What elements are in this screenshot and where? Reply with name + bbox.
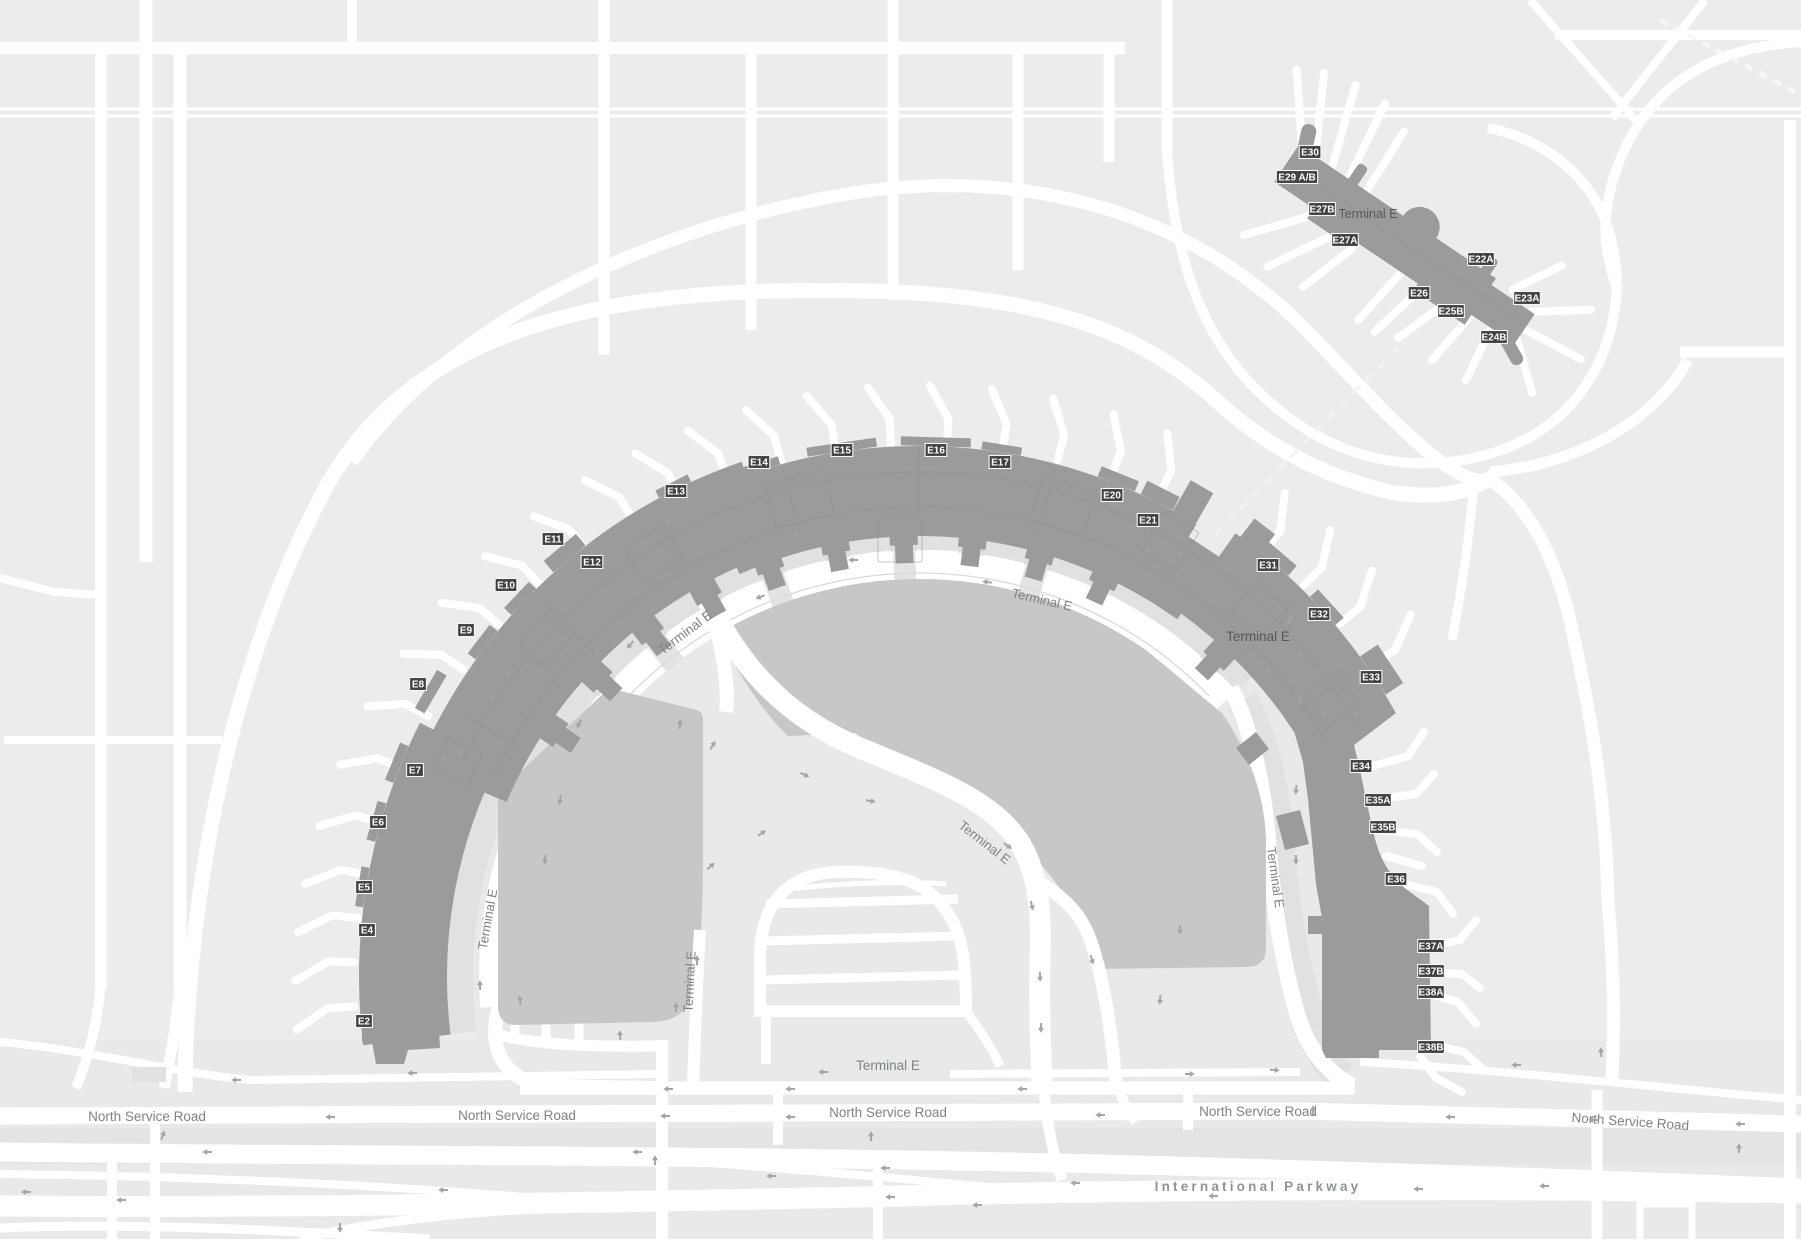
svg-text:E25B: E25B [1438,307,1463,318]
svg-text:E35B: E35B [1370,823,1395,834]
svg-text:E23A: E23A [1514,294,1539,305]
svg-text:E12: E12 [583,558,601,569]
svg-text:E22A: E22A [1468,255,1493,266]
svg-text:E2: E2 [358,1017,371,1028]
svg-text:North Service Road: North Service Road [88,1109,206,1124]
svg-text:E24B: E24B [1481,333,1506,344]
svg-text:E14: E14 [750,458,768,469]
svg-text:E13: E13 [667,487,685,498]
svg-text:E10: E10 [497,581,515,592]
svg-text:E31: E31 [1259,561,1277,572]
svg-text:E29 A/B: E29 A/B [1278,173,1315,184]
svg-text:E30: E30 [1301,148,1319,159]
svg-text:E7: E7 [409,766,422,777]
svg-text:E21: E21 [1139,516,1157,527]
svg-text:E15: E15 [833,446,851,457]
svg-text:E9: E9 [460,626,473,637]
svg-text:E17: E17 [991,458,1009,469]
svg-text:Terminal E: Terminal E [1338,207,1397,221]
svg-text:E16: E16 [927,446,945,457]
svg-text:International Parkway: International Parkway [1155,1179,1362,1194]
svg-text:E32: E32 [1310,610,1328,621]
svg-text:E4: E4 [361,926,374,937]
svg-text:E5: E5 [358,883,371,894]
svg-text:E38B: E38B [1418,1043,1443,1054]
svg-text:E37B: E37B [1418,967,1443,978]
svg-text:E33: E33 [1362,673,1380,684]
svg-text:E8: E8 [412,680,425,691]
svg-text:E11: E11 [544,535,562,546]
svg-text:E36: E36 [1387,875,1405,886]
svg-text:E27B: E27B [1309,205,1334,216]
svg-text:North Service Road: North Service Road [1199,1104,1317,1119]
svg-text:E38A: E38A [1418,988,1443,999]
svg-text:Terminal E: Terminal E [856,1058,920,1073]
svg-text:E37A: E37A [1418,942,1443,953]
svg-text:E35A: E35A [1365,796,1390,807]
svg-text:North Service Road: North Service Road [458,1108,576,1123]
svg-text:E26: E26 [1410,289,1428,300]
svg-text:E27A: E27A [1332,236,1357,247]
svg-text:E34: E34 [1352,762,1370,773]
svg-text:North Service Road: North Service Road [829,1105,947,1120]
svg-text:E20: E20 [1103,491,1121,502]
svg-text:Terminal E: Terminal E [1226,629,1290,644]
svg-text:E6: E6 [372,818,385,829]
